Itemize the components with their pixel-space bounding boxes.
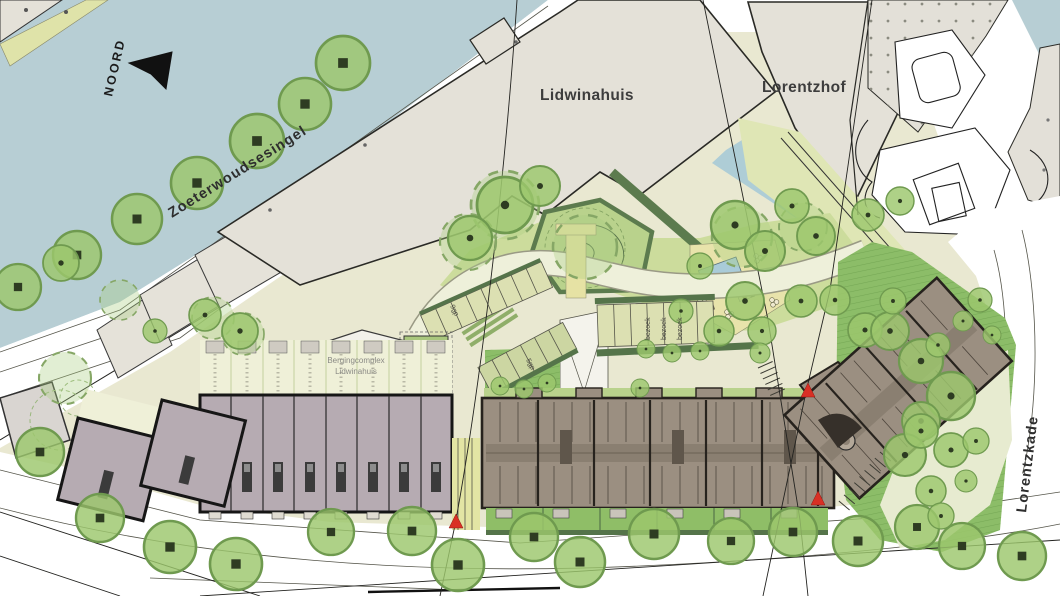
site-plan-map: NOORD Zoeterwoudsesingel Lidwinahuis Lor… (0, 0, 1060, 596)
parking-label-bezoek-2: bezoek (661, 317, 668, 340)
berging-label-line2: Lidwinahuis (335, 367, 377, 376)
berging-label-line1: Bergingcomplex (327, 356, 384, 365)
parking-label-bezoek-1: bezoek (645, 317, 652, 340)
site-plan-svg: NOORD Zoeterwoudsesingel Lidwinahuis Lor… (0, 0, 1060, 596)
parking-label-bezoek-3: bezoek (677, 317, 684, 340)
building-label-lorentzhof: Lorentzhof (762, 79, 847, 96)
building-label-lidwinahuis: Lidwinahuis (540, 87, 634, 104)
